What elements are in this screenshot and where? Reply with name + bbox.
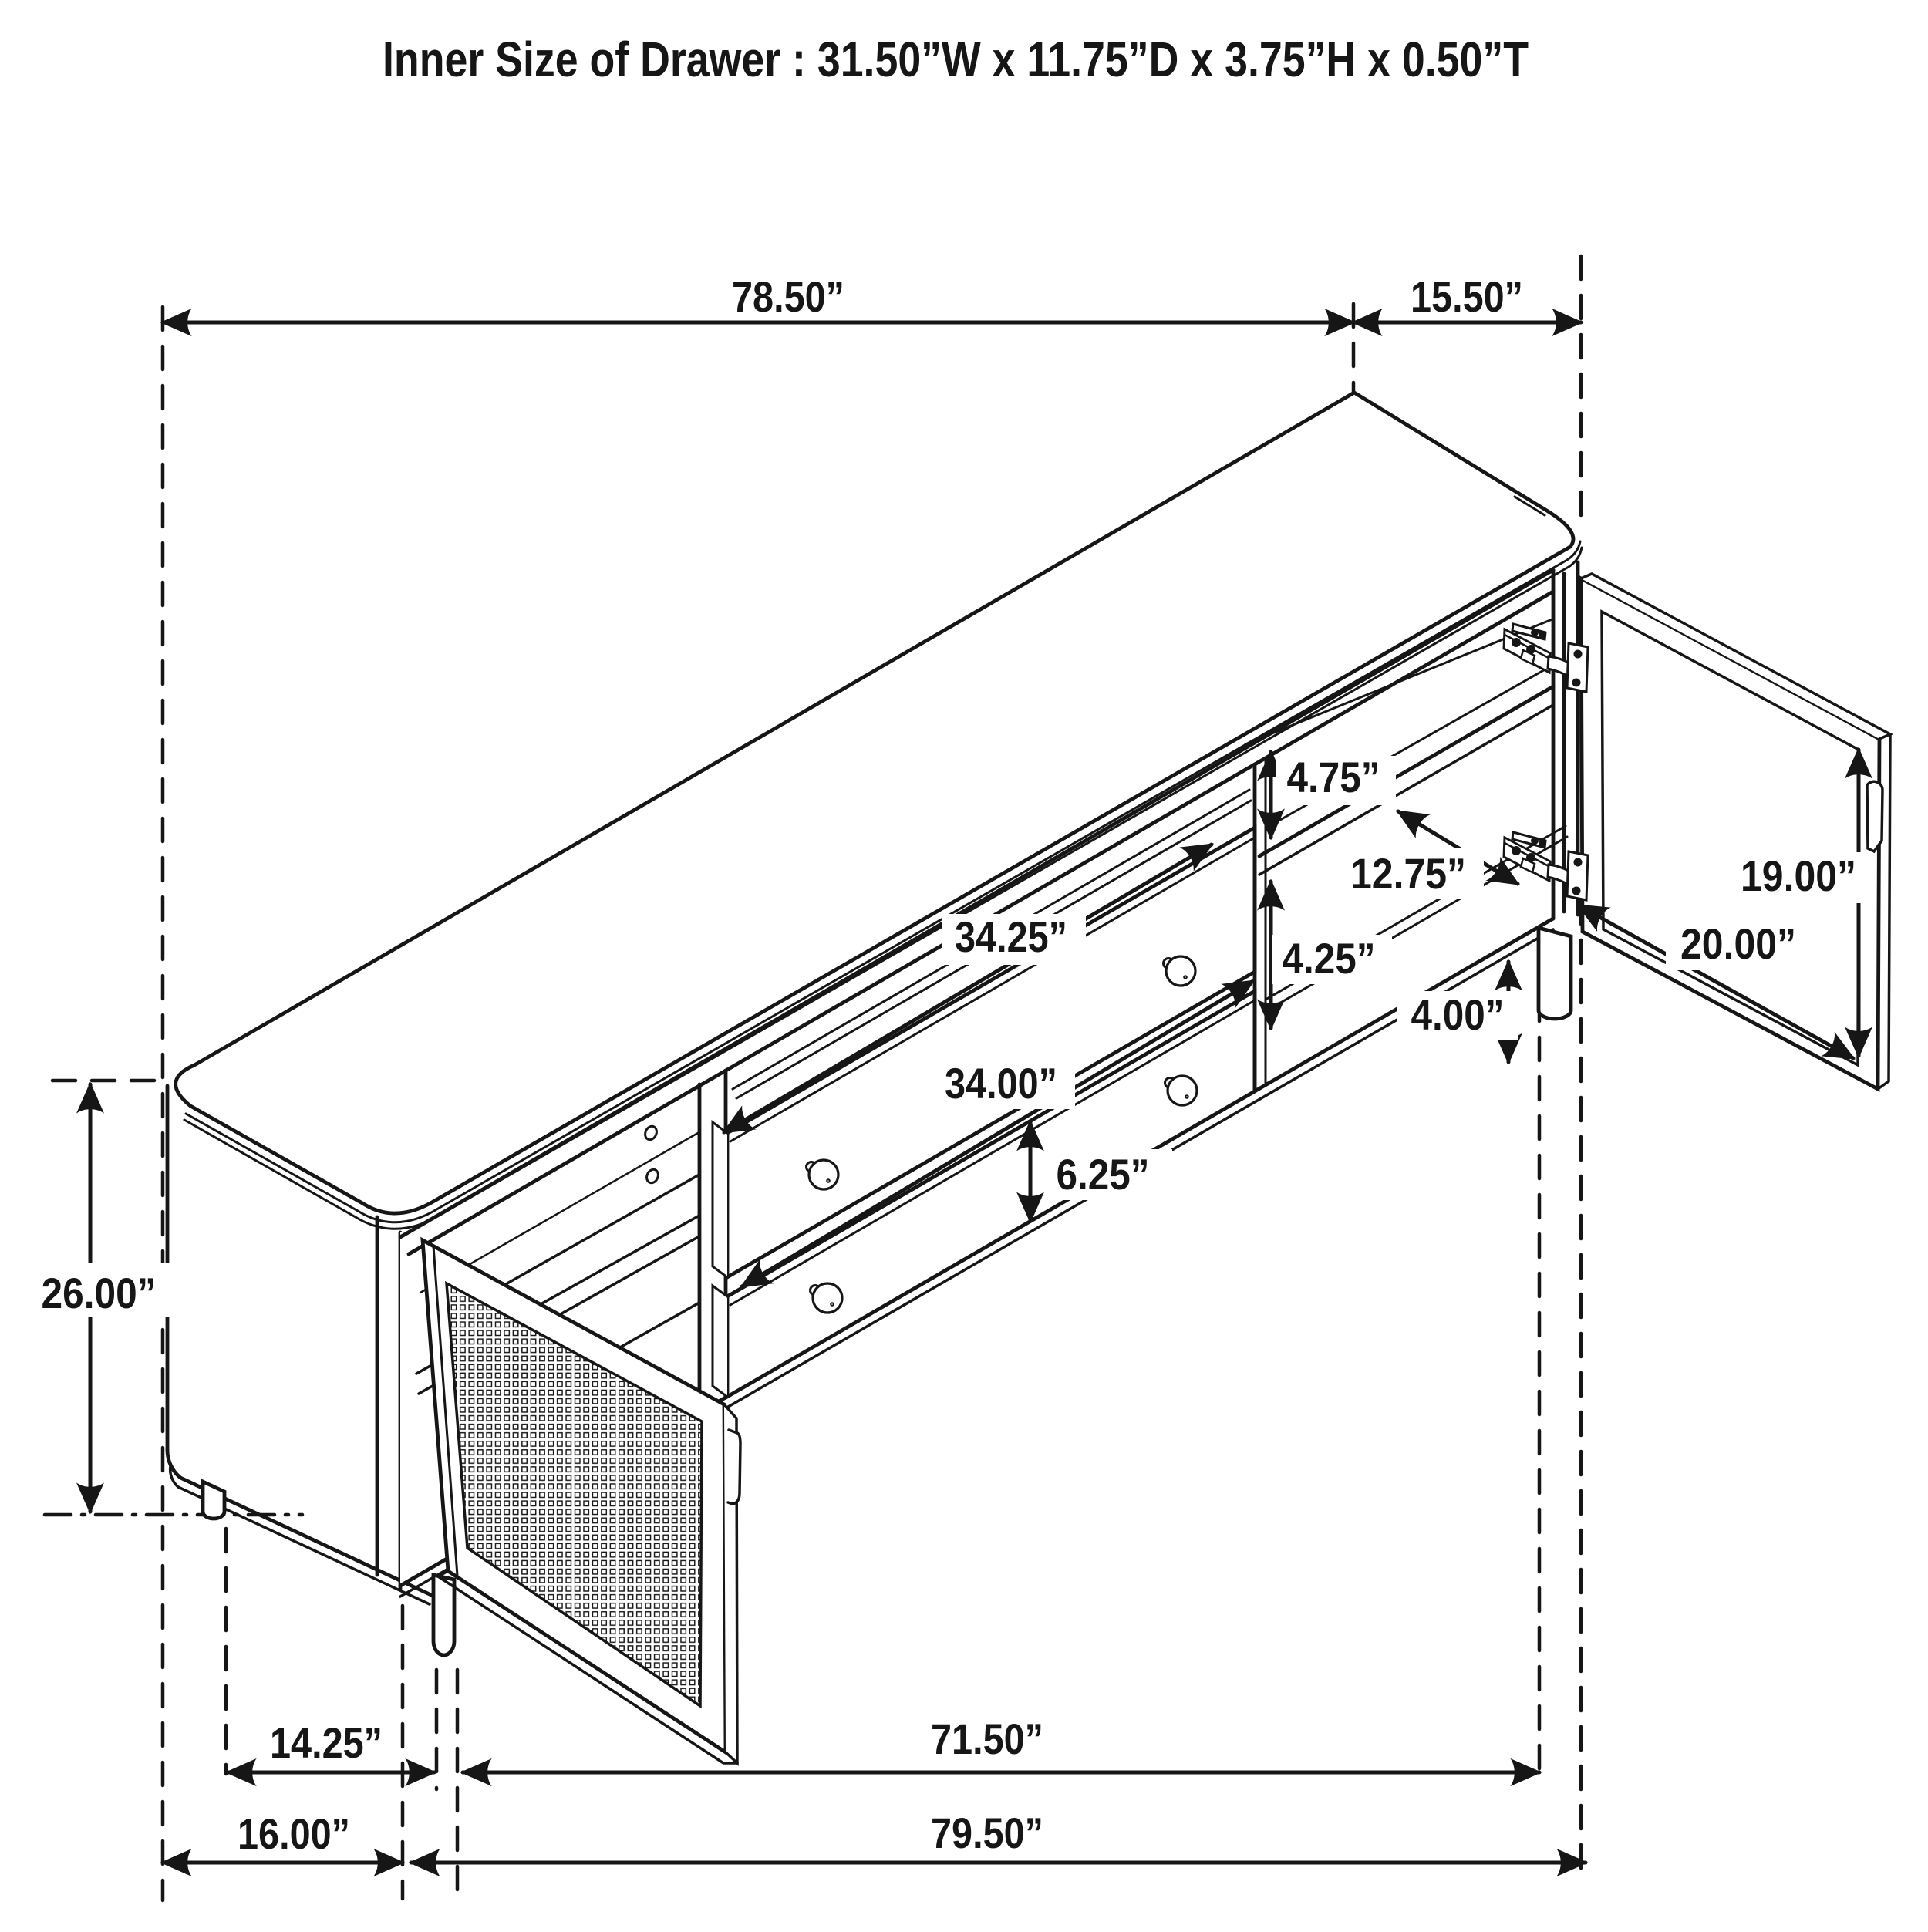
svg-text:71.50”: 71.50” [931, 1715, 1043, 1763]
svg-text:Inner Size of Drawer : 31.50”W: Inner Size of Drawer : 31.50”W x 11.75”D… [383, 32, 1529, 87]
svg-text:4.25”: 4.25” [1283, 934, 1376, 983]
svg-text:78.50”: 78.50” [732, 272, 844, 321]
svg-text:12.75”: 12.75” [1350, 849, 1466, 898]
svg-text:20.00”: 20.00” [1680, 919, 1796, 968]
svg-text:34.00”: 34.00” [945, 1059, 1057, 1108]
svg-text:19.00”: 19.00” [1741, 851, 1856, 900]
svg-text:26.00”: 26.00” [42, 1269, 157, 1317]
svg-text:4.75”: 4.75” [1287, 753, 1380, 801]
svg-text:14.25”: 14.25” [270, 1718, 383, 1767]
svg-text:79.50”: 79.50” [931, 1809, 1043, 1857]
svg-text:34.25”: 34.25” [955, 912, 1067, 961]
svg-text:15.50”: 15.50” [1411, 272, 1523, 321]
svg-text:4.00”: 4.00” [1411, 990, 1505, 1039]
svg-text:6.25”: 6.25” [1057, 1150, 1150, 1199]
svg-text:16.00”: 16.00” [238, 1809, 350, 1858]
